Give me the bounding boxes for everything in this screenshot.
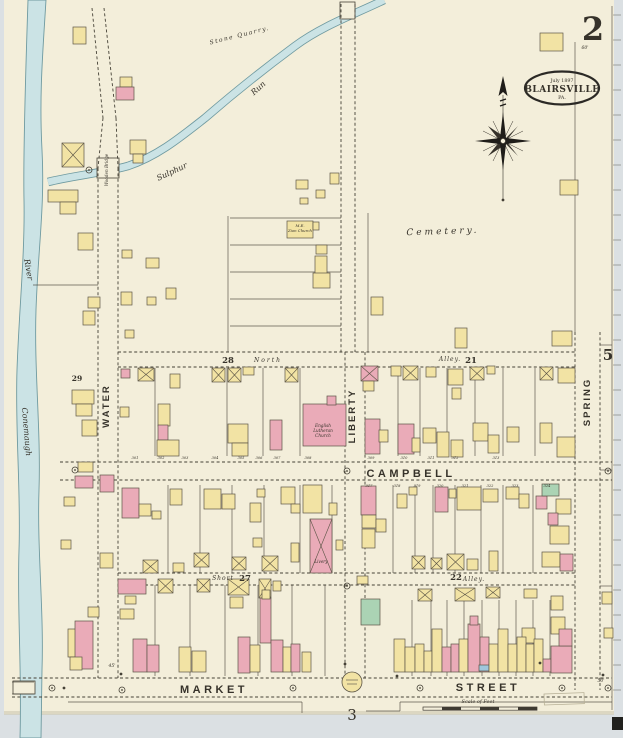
building (552, 331, 572, 346)
building (548, 513, 558, 525)
building (361, 599, 380, 625)
utility-circle-center (607, 687, 609, 689)
building (361, 486, 376, 515)
lutheran-church-line3: Church (315, 433, 331, 438)
building (157, 440, 179, 456)
building (78, 462, 93, 472)
building (250, 503, 261, 522)
building (327, 396, 336, 405)
building (336, 540, 343, 550)
building (75, 476, 93, 488)
lot-number: 304 (212, 456, 220, 460)
alley-21-word: Alley. (438, 356, 461, 363)
building (120, 77, 132, 87)
building (542, 552, 560, 567)
building (146, 258, 159, 268)
building (125, 330, 134, 338)
title-date: July 1897 (550, 78, 574, 84)
block-28: 28 (222, 356, 234, 366)
building (222, 494, 235, 509)
building (230, 597, 243, 608)
building (470, 616, 478, 625)
building (166, 288, 176, 299)
building (424, 651, 432, 672)
building (423, 428, 436, 443)
building (273, 581, 281, 591)
building (459, 639, 468, 672)
building (316, 245, 327, 254)
block-5: 5 (603, 346, 613, 364)
building (405, 647, 415, 672)
corner-dot-marker (396, 675, 399, 678)
building (281, 487, 295, 504)
building (158, 404, 170, 426)
block-3: 3 (347, 706, 357, 724)
building (488, 435, 499, 453)
lot-number: 303 (182, 456, 190, 460)
building (83, 311, 95, 325)
sheet-number: 2 (582, 10, 604, 48)
building (147, 645, 159, 672)
building (260, 598, 271, 643)
lot-number: 317 (366, 484, 374, 488)
building (270, 420, 282, 450)
building (362, 529, 375, 548)
building (489, 644, 498, 672)
lot-number: 307 (274, 456, 282, 460)
building (517, 637, 526, 672)
building (415, 644, 424, 672)
building (540, 33, 563, 51)
building (479, 665, 489, 671)
utility-circle-center (346, 470, 348, 472)
corner-dot-marker (344, 663, 347, 666)
building (409, 487, 417, 495)
dim-50: 50' (598, 678, 605, 684)
building (489, 551, 498, 571)
building (72, 390, 94, 404)
building (483, 489, 498, 502)
lot-number: 308 (305, 456, 313, 460)
north-bridge-deck (340, 2, 355, 19)
gas-holder (342, 672, 362, 692)
title-city: BLAIRSVILLE (524, 85, 599, 95)
building (558, 368, 575, 383)
utility-circle-center (292, 687, 294, 689)
market-street-word2: STREET (456, 682, 520, 694)
building (291, 644, 300, 672)
utility-circle-center (419, 687, 421, 689)
lot-number: 305 (238, 456, 246, 460)
livery-label: Livery (313, 559, 328, 564)
building (468, 624, 480, 672)
building (329, 503, 337, 515)
lot-number: 309 (368, 456, 376, 460)
utility-circle-center (346, 585, 348, 587)
lot-number: 324 (544, 484, 552, 488)
building (412, 438, 420, 452)
building (170, 489, 182, 505)
short-alley: Short (212, 575, 234, 582)
lot-number: 312 (452, 456, 460, 460)
building (78, 233, 93, 250)
me-zion-church-line2: Zion Church (287, 228, 313, 233)
building (449, 489, 456, 498)
building (262, 590, 270, 599)
building (120, 609, 134, 619)
lot-number: 311 (428, 456, 435, 460)
utility-circle-center (88, 169, 90, 171)
building (426, 367, 436, 377)
building (602, 592, 612, 604)
title-state: PA. (558, 95, 566, 101)
building (300, 198, 308, 204)
building (371, 297, 383, 315)
building (313, 273, 330, 288)
lot-number: 310 (401, 456, 409, 460)
building (550, 526, 569, 544)
lot-number: 323 (512, 484, 520, 488)
building (243, 367, 254, 375)
building (357, 576, 368, 584)
building (365, 419, 380, 454)
block-21: 21 (465, 356, 477, 366)
market-street-bridge-deck (13, 681, 35, 694)
building (64, 497, 75, 506)
building (379, 430, 388, 442)
lot-number: 319 (414, 484, 422, 488)
building (455, 328, 467, 348)
building (551, 596, 563, 610)
building (559, 629, 572, 646)
building (398, 424, 414, 454)
building (540, 423, 552, 443)
building (543, 659, 551, 672)
building (100, 475, 114, 492)
building (376, 519, 386, 532)
corner-dot-marker (602, 674, 605, 677)
wooden-bridge: Wooden Bridge (104, 153, 109, 186)
building (506, 487, 519, 499)
building (228, 424, 248, 443)
block-27: 27 (239, 574, 251, 584)
building (519, 494, 529, 508)
north-alley: North (253, 357, 282, 364)
dim-45: 45' (108, 663, 116, 669)
building (152, 511, 161, 519)
corner-dot-marker (63, 687, 66, 690)
lot-number: 302 (158, 456, 166, 460)
building (507, 427, 519, 442)
building (604, 628, 613, 638)
building (473, 423, 488, 441)
water-street: WATER (101, 384, 112, 428)
building (467, 559, 478, 570)
building (435, 487, 448, 512)
building (122, 488, 139, 518)
building (130, 140, 146, 154)
building (250, 645, 260, 672)
building (120, 407, 129, 417)
building (232, 443, 248, 456)
building (508, 644, 517, 672)
building (88, 607, 99, 617)
building (551, 646, 572, 673)
building (133, 639, 147, 672)
utility-circle-center (121, 689, 123, 691)
building (302, 652, 311, 672)
market-street-word1: MARKET (180, 684, 248, 696)
building (88, 297, 100, 308)
building (316, 190, 325, 198)
utility-circle-center (51, 687, 53, 689)
building (313, 222, 319, 230)
building (192, 651, 206, 672)
map-canvas: 3013023033043053063073083093103113123133… (0, 0, 623, 738)
building (291, 543, 299, 562)
building (121, 292, 132, 305)
building (121, 369, 130, 378)
building (122, 250, 132, 258)
block-29: 29 (72, 374, 82, 383)
scale-of-feet: Scale of Feet (462, 699, 496, 705)
compass-hub (500, 138, 505, 143)
building (82, 420, 97, 436)
building (61, 540, 71, 549)
building (487, 366, 495, 374)
building (432, 629, 442, 672)
paper-bottom-edge (4, 711, 614, 715)
building (147, 297, 156, 305)
lot-number: 320 (437, 484, 445, 488)
building (291, 504, 300, 513)
building (173, 563, 184, 572)
block-22: 22 (450, 573, 462, 583)
building (303, 485, 322, 513)
building (133, 154, 143, 163)
building (116, 87, 134, 100)
building (48, 190, 78, 202)
building (330, 173, 339, 184)
building (73, 27, 86, 44)
building (60, 202, 76, 214)
building (556, 499, 571, 514)
alley-22-word: Alley. (462, 576, 485, 583)
building (560, 180, 578, 195)
building (536, 496, 547, 509)
building (204, 489, 221, 509)
building (158, 425, 168, 440)
building (451, 440, 463, 457)
building (437, 432, 449, 457)
building (452, 388, 461, 399)
building (238, 637, 250, 673)
lot-number: 322 (487, 484, 495, 488)
campbell-street: CAMPBELL (366, 468, 455, 480)
building (271, 640, 283, 672)
building (448, 369, 463, 385)
building (363, 381, 374, 391)
building (498, 629, 508, 672)
building (560, 554, 573, 571)
building (394, 639, 405, 672)
building (125, 596, 136, 604)
building (179, 647, 191, 672)
utility-circle-center (561, 687, 563, 689)
building (70, 657, 82, 670)
building (283, 647, 291, 672)
corner-dot-marker (120, 673, 123, 676)
building (170, 374, 180, 388)
building (534, 639, 543, 672)
lot-number: 301 (132, 456, 139, 460)
scan-notch (612, 717, 623, 730)
spring-street: SPRING (582, 378, 593, 426)
building (139, 504, 151, 516)
lot-number: 321 (462, 484, 469, 488)
building (257, 489, 265, 497)
building (100, 553, 113, 568)
liberty-street: LIBERTY (347, 389, 358, 444)
building (76, 404, 92, 416)
building (397, 494, 407, 508)
building (526, 644, 534, 672)
building (253, 538, 262, 547)
corner-dot-marker (539, 662, 542, 665)
building (391, 366, 401, 376)
building (442, 647, 451, 672)
building (118, 579, 146, 594)
building (296, 180, 308, 189)
building (451, 644, 459, 672)
building (362, 515, 376, 528)
utility-circle-center (607, 470, 609, 472)
building (524, 589, 537, 598)
lot-number: 318 (394, 484, 402, 488)
utility-circle-center (74, 469, 76, 471)
sanborn-map-sheet: 3013023033043053063073083093103113123133… (0, 0, 623, 738)
lot-number: 306 (256, 456, 264, 460)
building (557, 437, 575, 457)
edge-ticks (613, 15, 621, 690)
building (457, 487, 481, 510)
lot-number: 313 (493, 456, 501, 460)
